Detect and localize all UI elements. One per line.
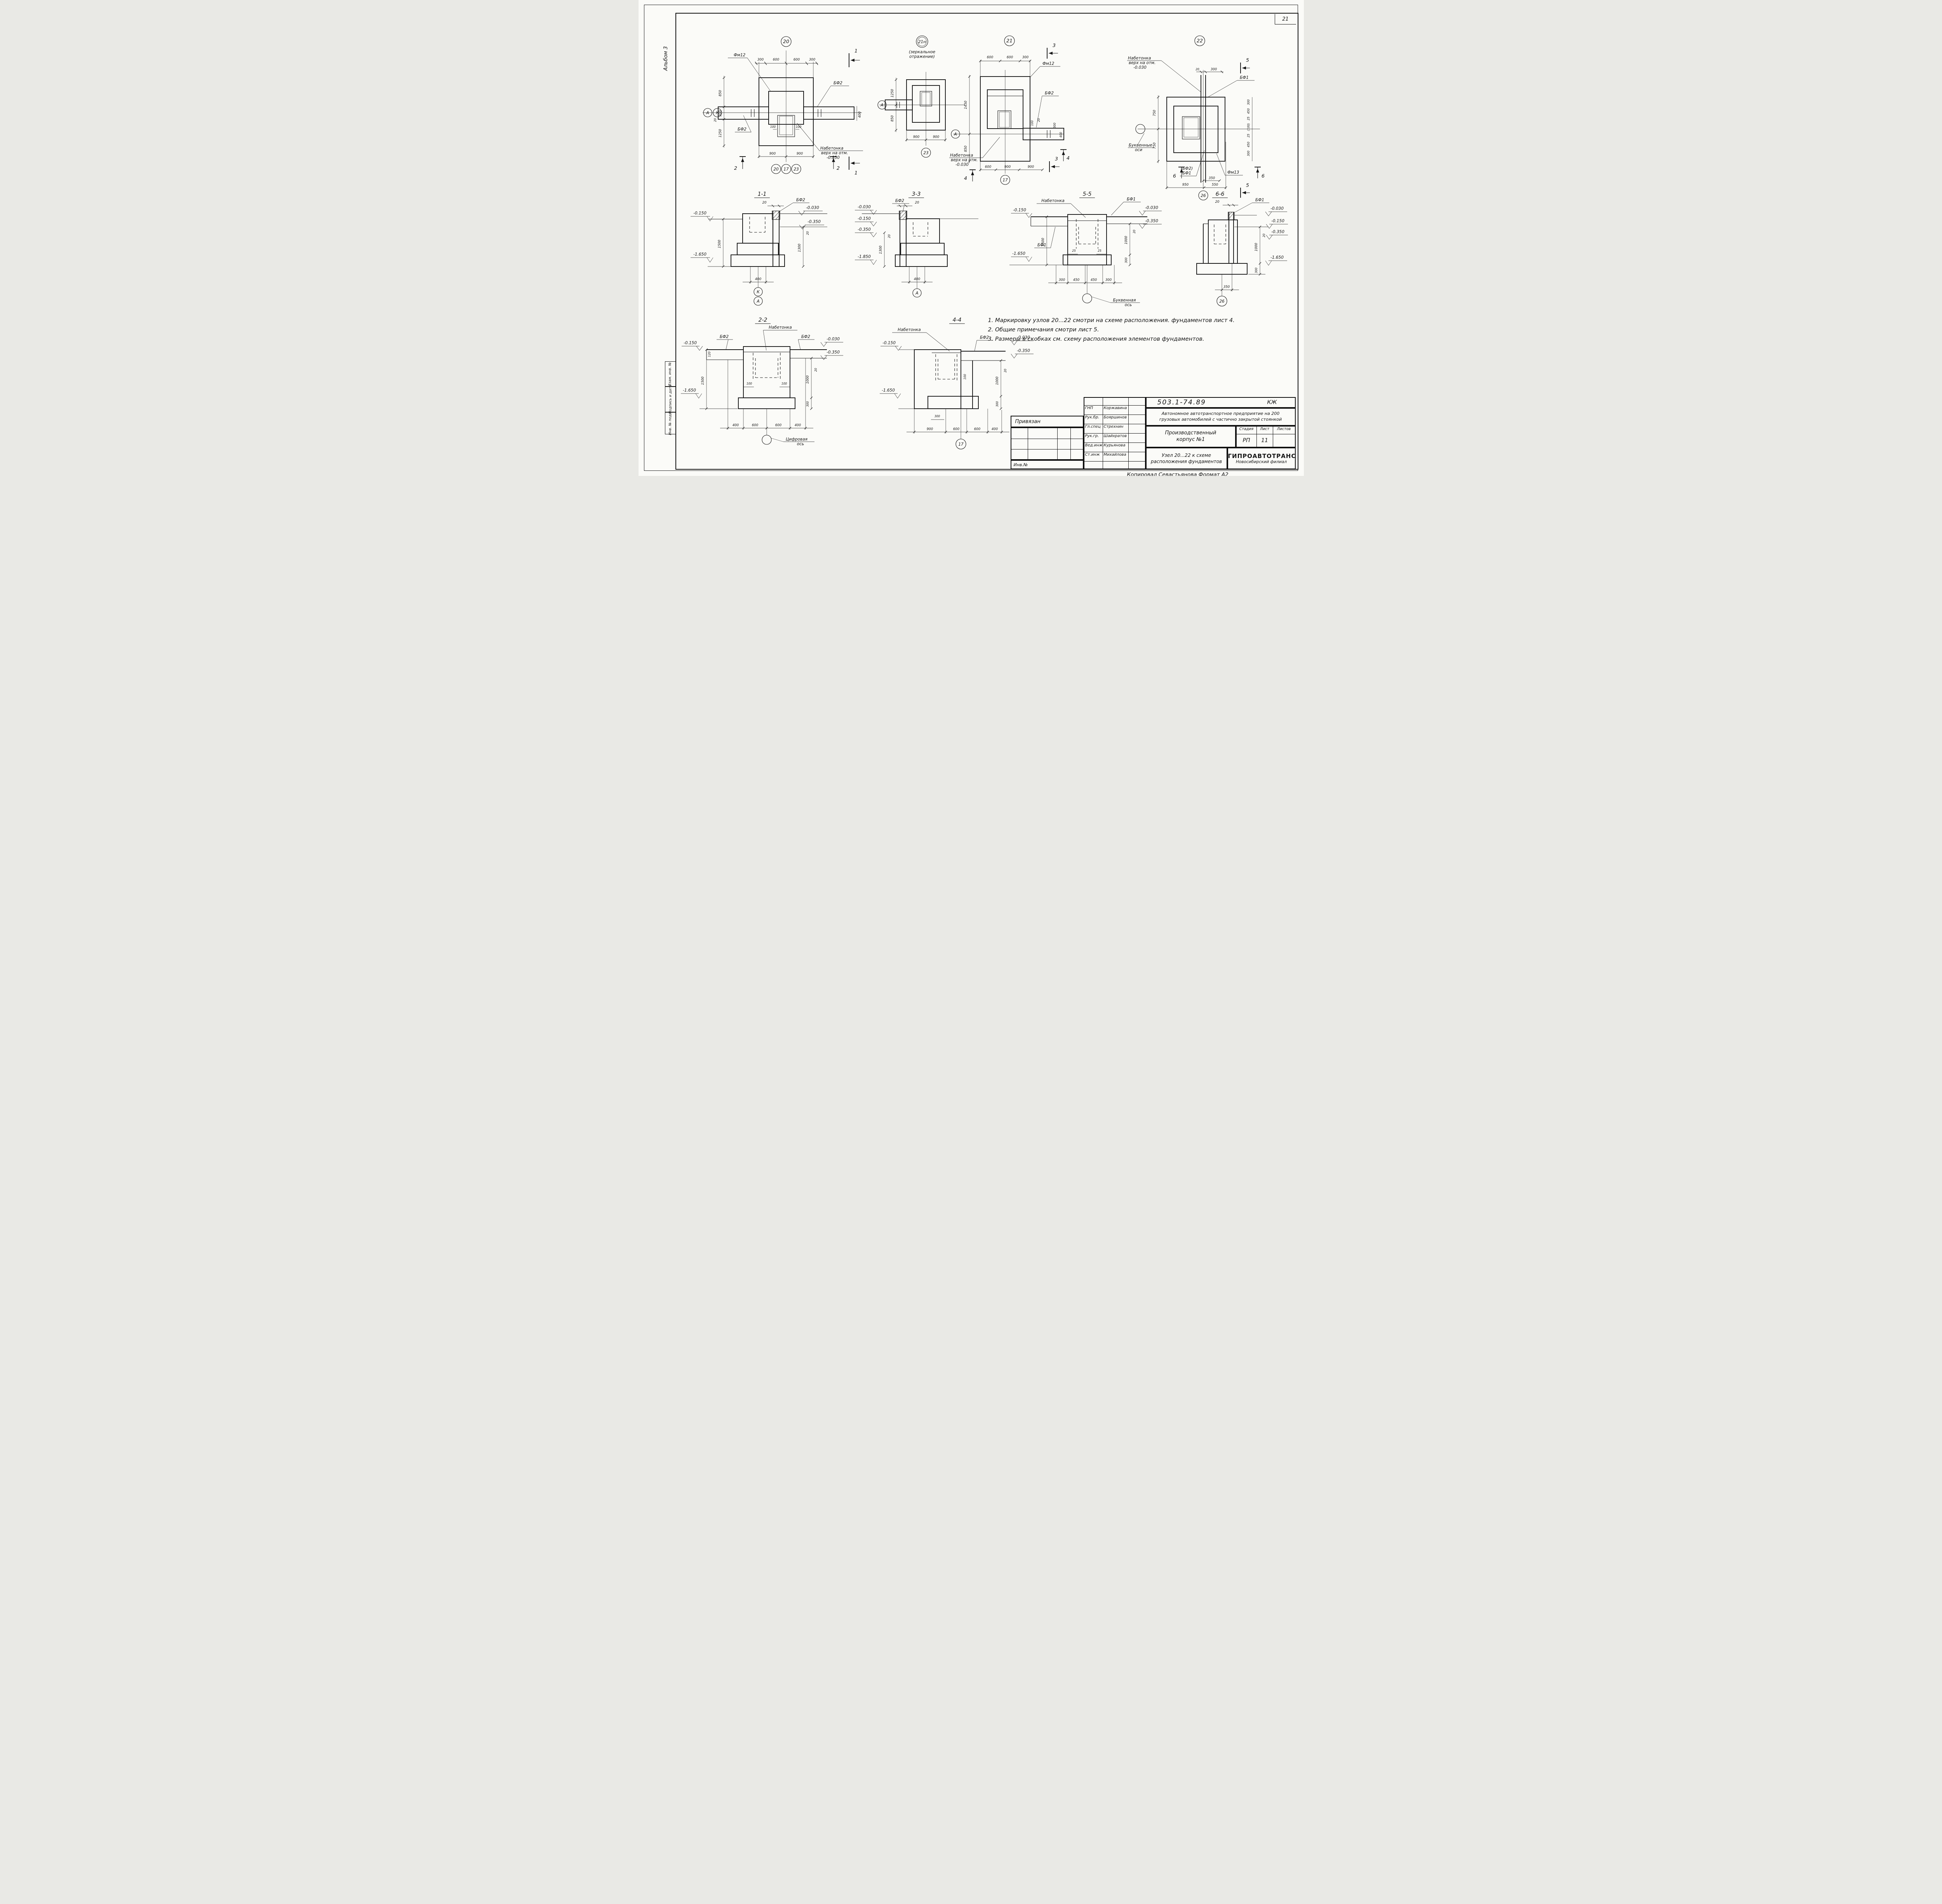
staff-role: ГНП <box>1084 406 1103 415</box>
section-marker-6: 6 <box>1173 173 1176 179</box>
dim: 850 <box>891 115 894 122</box>
label-bf2: БФ2 <box>801 334 810 339</box>
level-mark: -1.650 <box>1012 251 1025 256</box>
plan-node-22: 22 Набетонка верх на отм. -0.030 20 300 … <box>1124 33 1268 202</box>
frame-label-inv: Инв. № подл. <box>668 411 672 435</box>
dim: 1500 <box>718 240 722 248</box>
axis-bubble-23: 23 <box>923 151 928 155</box>
level-mark: -0.030 <box>806 206 819 210</box>
label-bf1: БФ1 <box>1255 198 1264 202</box>
stamp-sheet-title-line2: расположения фундаментов <box>1147 458 1227 465</box>
sheets-value <box>1273 434 1295 447</box>
plan-node-21: 21 3 600 600 300 Фм12 БФ2 А 1450 850 100… <box>945 33 1066 186</box>
mirror-note: отражение) <box>909 54 935 59</box>
section-marker-4: 4 <box>964 175 967 181</box>
staff-name: Михайлова <box>1103 452 1129 462</box>
level-mark: -1.650 <box>1270 255 1284 260</box>
label-bf2: БФ2 <box>834 81 842 85</box>
level-mark: -1.650 <box>882 388 895 393</box>
level-mark: -0.150 <box>1013 208 1026 213</box>
note-3: 3. Размеры в скобках см. схему расположе… <box>988 335 1248 344</box>
stamp-attached-label: Привязан <box>1011 419 1041 425</box>
label-fm12: Фм12 <box>1042 61 1055 66</box>
stamp-staff-table: ГНП Коржавина Рук.бр. Бояршинов Гл.спец … <box>1084 397 1146 469</box>
axis-bubble-17: 17 <box>1002 178 1008 183</box>
dim: 25 <box>1098 249 1102 253</box>
label-bf2: БФ2 <box>980 335 989 340</box>
label-nabetonka: Набетонка <box>769 325 792 330</box>
staff-name: Бояршинов <box>1103 415 1129 424</box>
label-nabetonka: Набетонка <box>950 153 973 158</box>
dim: 750 <box>1153 110 1157 116</box>
dim: 1250 <box>719 129 722 138</box>
dim: 350 <box>1208 176 1215 180</box>
dim: 20 <box>1195 68 1199 71</box>
axis-bubble-26: 26 <box>1219 299 1225 304</box>
level-mark: -0.030 <box>858 205 871 209</box>
dim: 300 <box>1210 68 1216 71</box>
stamp-project-line1: Автономное автотранспортное предприятие … <box>1147 411 1295 417</box>
dim: 300 <box>806 401 809 407</box>
org-branch: Новосибирский филиал <box>1228 460 1295 464</box>
dim: 1300 <box>798 244 802 252</box>
node-21-bubble: 21 <box>1006 38 1013 44</box>
level-mark: -1.850 <box>858 254 871 259</box>
axis-bubble-A: А <box>954 132 957 137</box>
notes-block: 1. Маркировку узлов 20...22 смотри на сх… <box>988 317 1248 344</box>
axis-bubble: 20 <box>773 167 779 172</box>
sheet-value: 11 <box>1257 434 1273 447</box>
staff-role: Ст.инж <box>1084 452 1103 462</box>
level-mark: -0.030 <box>827 337 840 341</box>
stamp-sheet-title-cell: Узел 20...22 к схеме расположения фундам… <box>1146 448 1227 469</box>
dim: 950 <box>1182 183 1188 187</box>
stamp-project-cell: Автономное автотранспортное предприятие … <box>1146 408 1296 426</box>
frame-cell-inv: Инв. № подл. <box>665 412 676 434</box>
dim: 300 <box>995 401 999 407</box>
node-20-bubble: 20 <box>783 38 789 44</box>
label-nabetonka: Набетонка <box>1041 199 1064 203</box>
dim: 850 <box>719 90 722 96</box>
dim: 1300 <box>879 246 883 254</box>
level-mark: -0.030 <box>1270 206 1284 211</box>
label-digit-axis: ось <box>797 442 804 446</box>
dim: 900 <box>796 152 802 156</box>
label-nabetonka: верх на отм. <box>951 158 978 162</box>
dim: 400 <box>732 423 738 427</box>
level-mark: -0.350 <box>827 350 840 355</box>
dim: 20 <box>887 234 891 238</box>
dim: 750 <box>1153 143 1157 149</box>
dim: 1000 <box>1124 236 1128 244</box>
stamp-object-line1: Производственный <box>1147 430 1235 437</box>
level-mark: -0.150 <box>1271 219 1284 223</box>
label-bf1: БФ1 <box>1182 171 1191 176</box>
section-marker-3: 3 <box>1053 42 1056 48</box>
dim: 300 <box>934 415 940 418</box>
dim: 300 <box>1105 278 1111 282</box>
dim: 20 <box>713 118 717 122</box>
stamp-doc-number: 503.1-74.89 <box>1147 399 1206 406</box>
label-fm13: Фм13 <box>1227 170 1239 175</box>
stamp-inv-cell: Инв.№ <box>1011 460 1084 469</box>
section-2-2: 2-2 Набетонка БФ2 БФ2 -0.150 -0.030 -0.3… <box>679 315 846 451</box>
axis-bubble: 17 <box>783 167 789 172</box>
frame-label-vzam: Взам. инв. № <box>668 362 672 386</box>
stamp-object-line2: корпус №1 <box>1147 437 1235 443</box>
stamp-left-grid <box>1011 427 1084 460</box>
dim: 25 <box>1247 134 1250 138</box>
dim: 900 <box>1004 165 1010 169</box>
level-mark: -0.350 <box>807 219 821 224</box>
stamp-inv-label: Инв.№ <box>1011 462 1028 467</box>
dim: 600 <box>775 423 781 427</box>
label-letter-axes: оси <box>1135 148 1142 152</box>
label-bf1: БФ1 <box>1127 197 1136 202</box>
dim: 100 <box>746 382 752 385</box>
stage-header: Стадия <box>1237 427 1257 434</box>
axis-bubble-A: А <box>756 299 759 304</box>
axis-bubble-17: 17 <box>958 442 964 447</box>
dim: 20 <box>814 368 818 372</box>
section-marker-3: 3 <box>1055 156 1058 162</box>
copied-line: Копировал Севастьянова Формат А2 <box>1127 472 1229 476</box>
axis-bubble-A: А <box>915 291 918 296</box>
dim: 20 <box>762 201 766 205</box>
label-letter-axes: Буквенные <box>1129 143 1152 148</box>
dim: 300 <box>1247 99 1250 105</box>
dim: 600 <box>773 58 779 62</box>
stamp-project-line2: грузовых автомобилей с частично закрытой… <box>1147 417 1295 423</box>
section-6-6: 6-6 20 БФ1 -0.030 -0.150 -0.350 -1.650 1… <box>1175 190 1296 310</box>
stage-value: РП <box>1237 434 1257 447</box>
dim: 600 <box>1006 56 1013 59</box>
level-mark: -0.350 <box>1017 348 1030 353</box>
frame-label-podpis: Подпись и дата <box>668 385 672 414</box>
album-label: Альбом 3 <box>663 46 669 70</box>
label-nabetonka: -0.030 <box>955 162 969 167</box>
dim: 1250 <box>891 89 894 98</box>
staff-name: Шайхратов <box>1103 434 1129 443</box>
label-nabetonka: верх на отм. <box>821 151 848 155</box>
sheets-header: Листов <box>1273 427 1295 434</box>
dim: 20 <box>1004 369 1007 373</box>
node-21n-bubble: 21н <box>918 40 926 44</box>
dim: 900 <box>933 135 939 139</box>
dim: 100 <box>795 125 801 129</box>
dim: 300 <box>1255 268 1258 273</box>
dim: 20 <box>1037 118 1041 122</box>
dim: 600 <box>953 427 959 431</box>
dim: 1000 <box>995 376 999 385</box>
dim: 300 <box>1058 278 1065 282</box>
staff-role: Вед.инж <box>1084 443 1103 452</box>
label-nabetonka: Набетонка <box>898 327 921 332</box>
label-bf2: БФ2 <box>1045 91 1054 96</box>
staff-name: Стрехнин <box>1103 424 1129 434</box>
dim: 600 <box>987 56 993 59</box>
section-marker-1: 1 <box>854 170 858 176</box>
dim: 450 <box>1247 108 1250 114</box>
section-marker-2: 2 <box>734 165 737 171</box>
dim: 850 <box>964 146 968 152</box>
dim: 400 <box>991 427 997 431</box>
note-1: 1. Маркировку узлов 20...22 смотри на сх… <box>988 317 1248 325</box>
level-mark: -1.650 <box>683 388 696 393</box>
label-letter-axis: ось <box>1124 303 1131 307</box>
sheet-number-box: 21 <box>1275 14 1296 24</box>
section-marker-5: 5 <box>1246 57 1249 63</box>
dim: 1000 <box>806 375 810 384</box>
dim: 100 <box>1030 120 1034 126</box>
dim: 20 <box>1262 233 1266 237</box>
frame-cell-vzam: Взам. инв. № <box>665 361 676 387</box>
drawing-sheet: 21 Альбом 3 Взам. инв. № Подпись и дата … <box>639 0 1304 476</box>
label-nabetonka: Набетонка <box>1128 56 1151 61</box>
dim: 900 <box>1027 165 1034 169</box>
dim: 100 <box>770 125 776 129</box>
dim: 120 <box>708 352 711 357</box>
dim: 600 <box>752 423 758 427</box>
stamp-doc-row: 503.1-74.89 КЖ <box>1146 397 1296 408</box>
section-marker-2: 2 <box>837 165 840 171</box>
dim: 300 <box>1124 258 1128 263</box>
album-label-box: Альбом 3 <box>661 37 671 80</box>
section-title: 1-1 <box>757 191 766 197</box>
frame-cell-podpis: Подпись и дата <box>665 386 676 413</box>
dim: 20 <box>915 201 919 205</box>
axis-bubble-K: К <box>716 111 719 115</box>
label-nabetonka: -0.030 <box>1133 65 1147 70</box>
label-letter-axis: Буквенная <box>1113 298 1136 303</box>
section-title: 6-6 <box>1215 191 1224 197</box>
dim: 1500 <box>701 376 705 385</box>
dim: 900 <box>926 427 933 431</box>
section-3-3: 3-3 -0.030 -0.150 -0.350 -1.850 1300 20 … <box>850 190 982 310</box>
sheet-header: Лист <box>1257 427 1273 434</box>
section-title: 3-3 <box>912 191 921 197</box>
section-marker-4: 4 <box>1067 155 1070 161</box>
dim: 550 <box>1211 183 1218 187</box>
dim: 600 <box>793 58 799 62</box>
staff-role: Гл.спец <box>1084 424 1103 434</box>
section-marker-1: 1 <box>854 48 858 54</box>
dim: 100 <box>963 374 967 380</box>
stamp-attached-cell: Привязан <box>1011 416 1084 427</box>
level-mark: -0.150 <box>858 216 871 221</box>
dim: 450 <box>1247 142 1250 148</box>
label-bf2: БФ2 <box>895 199 904 203</box>
dim: 450 <box>1073 278 1079 282</box>
axis-bubble-A: А <box>706 111 709 115</box>
dim: 600 <box>985 165 991 169</box>
stamp-org-cell: ГИПРОАВТОТРАНС Новосибирский филиал <box>1227 448 1296 469</box>
staff-name: Коржавина <box>1103 406 1129 415</box>
staff-role: Рук.бр. <box>1084 415 1103 424</box>
label-bf1: БФ1 <box>1240 75 1249 80</box>
label-nabetonka: Набетонка <box>820 146 843 151</box>
dim: 400 <box>858 111 862 118</box>
label-digit-axis: Цифровая <box>786 437 807 442</box>
dim: 300 <box>809 58 815 62</box>
section-title: 4-4 <box>952 317 961 323</box>
staff-name: Курьянова <box>1103 443 1129 452</box>
section-title: 2-2 <box>758 317 767 323</box>
dim: 900 <box>769 152 775 156</box>
level-mark: -0.350 <box>1145 219 1158 223</box>
dim: 1500 <box>1041 238 1045 246</box>
stamp-stage-table: Стадия Лист Листов РП 11 <box>1236 426 1296 448</box>
dim: 300 <box>1053 123 1056 129</box>
level-mark: -0.350 <box>1271 230 1284 234</box>
staff-role: Рук.гр. <box>1084 434 1103 443</box>
dim: (100) <box>1247 123 1250 131</box>
note-2: 2. Общие примечания смотри лист 5. <box>988 326 1248 334</box>
sheet-number: 21 <box>1282 16 1289 22</box>
level-mark: -0.150 <box>882 341 896 345</box>
level-mark: -0.150 <box>693 211 706 216</box>
section-marker-5: 5 <box>1246 182 1249 188</box>
axis-bubble-K: К <box>757 290 760 294</box>
dim: 300 <box>757 58 763 62</box>
dim: 350 <box>1223 285 1229 289</box>
label-fm12: Фм12 <box>734 53 746 57</box>
label-bf2: БФ2 <box>738 127 747 132</box>
dim: 300 <box>1022 56 1028 59</box>
dim: 20 <box>806 231 809 235</box>
dim: 1000 <box>1255 243 1258 251</box>
level-mark: -0.350 <box>858 227 871 232</box>
label-bf2: БФ2 <box>796 198 805 202</box>
section-5-5: 5-5 Набетонка БФ1 БФ1 -0.150 -0.030 -0.3… <box>1009 190 1165 314</box>
section-1-1: 1-1 -0.150 20 БФ2 -0.030 -0.350 1500 -1.… <box>684 190 836 310</box>
level-mark: -0.150 <box>684 341 697 345</box>
plan-node-20: 20 300 600 600 300 850 300 20 1250 400 А <box>697 33 864 181</box>
level-mark: -1.650 <box>693 252 706 257</box>
level-mark: -0.030 <box>1145 206 1158 210</box>
dim: 400 <box>1059 132 1063 138</box>
dim: 25 <box>1072 249 1076 253</box>
section-marker-6: 6 <box>1262 173 1265 179</box>
axis-bubble-A: А <box>880 103 883 108</box>
axis-bubble: 23 <box>794 167 799 172</box>
dim: 450 <box>1090 278 1096 282</box>
node-22-bubble: 22 <box>1197 38 1203 44</box>
label-bf2: БФ2 <box>720 334 729 339</box>
dim: 20 <box>1215 200 1219 204</box>
stamp-object-cell: Производственный корпус №1 <box>1146 426 1236 448</box>
section-title: 5-5 <box>1082 191 1091 197</box>
stamp-mark: КЖ <box>1267 399 1295 406</box>
mirror-note: (зеркальное <box>908 50 935 54</box>
dim: 100 <box>781 382 787 385</box>
dim: 900 <box>913 135 919 139</box>
dim: 400 <box>794 423 800 427</box>
dim: 300 <box>1247 151 1250 157</box>
dim: 25 <box>1247 117 1250 120</box>
label-nabetonka: верх на отм. <box>1129 61 1155 65</box>
dim: 600 <box>974 427 980 431</box>
org-name: ГИПРОАВТОТРАНС <box>1228 453 1295 460</box>
dim: 20 <box>1133 230 1136 233</box>
stamp-sheet-title-line1: Узел 20...22 к схеме <box>1147 452 1227 458</box>
dim: 1450 <box>964 101 968 109</box>
